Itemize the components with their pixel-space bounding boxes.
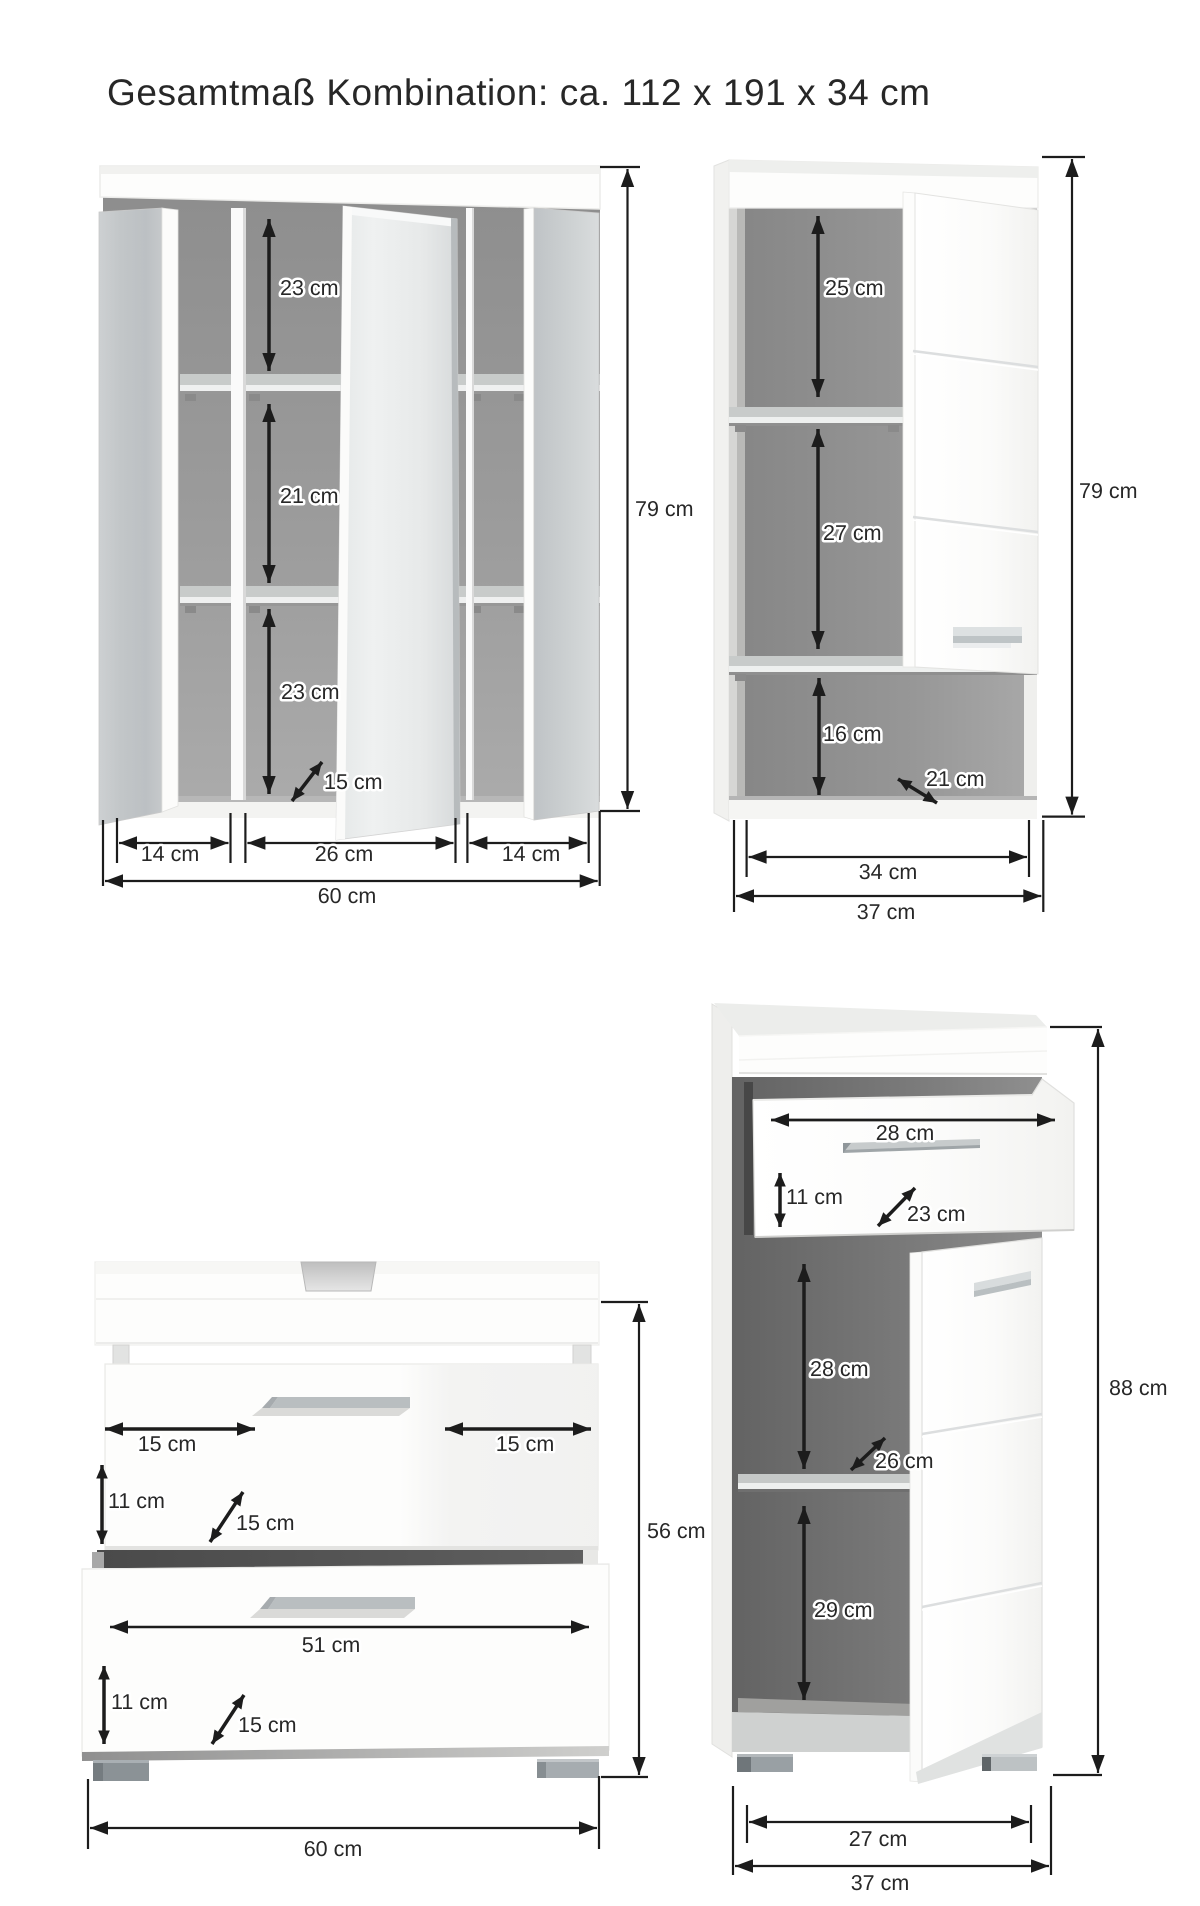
svg-text:14 cm: 14 cm	[502, 842, 561, 866]
svg-text:15 cm: 15 cm	[138, 1432, 197, 1456]
svg-text:11 cm: 11 cm	[111, 1690, 168, 1714]
svg-text:60 cm: 60 cm	[318, 884, 377, 908]
svg-text:34 cm: 34 cm	[859, 860, 918, 884]
svg-text:60 cm: 60 cm	[304, 1837, 363, 1861]
svg-text:21 cm: 21 cm	[926, 767, 985, 791]
svg-text:28 cm: 28 cm	[810, 1357, 869, 1381]
svg-text:26 cm: 26 cm	[875, 1449, 934, 1473]
svg-text:14 cm: 14 cm	[141, 842, 200, 866]
svg-text:37 cm: 37 cm	[857, 900, 916, 924]
svg-text:15 cm: 15 cm	[324, 770, 383, 794]
svg-text:11 cm: 11 cm	[108, 1489, 165, 1513]
svg-text:21 cm: 21 cm	[280, 484, 339, 508]
svg-text:15 cm: 15 cm	[238, 1713, 297, 1737]
svg-text:56 cm: 56 cm	[647, 1519, 706, 1543]
svg-text:Gesamtmaß Kombination: ca. 112: Gesamtmaß Kombination: ca. 112 x 191 x 3…	[107, 72, 931, 113]
svg-text:27 cm: 27 cm	[849, 1827, 908, 1851]
svg-text:25 cm: 25 cm	[825, 276, 884, 300]
svg-text:27 cm: 27 cm	[823, 521, 882, 545]
svg-text:28 cm: 28 cm	[876, 1121, 935, 1145]
svg-text:23 cm: 23 cm	[280, 276, 339, 300]
svg-text:15 cm: 15 cm	[496, 1432, 555, 1456]
svg-text:88 cm: 88 cm	[1109, 1376, 1168, 1400]
svg-text:23 cm: 23 cm	[907, 1202, 966, 1226]
svg-text:79 cm: 79 cm	[1079, 479, 1138, 503]
svg-text:15 cm: 15 cm	[236, 1511, 295, 1535]
svg-text:26 cm: 26 cm	[315, 842, 374, 866]
svg-text:79 cm: 79 cm	[635, 497, 694, 521]
svg-text:23 cm: 23 cm	[281, 680, 340, 704]
svg-text:51 cm: 51 cm	[302, 1633, 361, 1657]
svg-text:16 cm: 16 cm	[823, 722, 882, 746]
svg-text:11 cm: 11 cm	[786, 1185, 843, 1209]
svg-text:37 cm: 37 cm	[851, 1871, 910, 1895]
svg-text:29 cm: 29 cm	[814, 1598, 873, 1622]
